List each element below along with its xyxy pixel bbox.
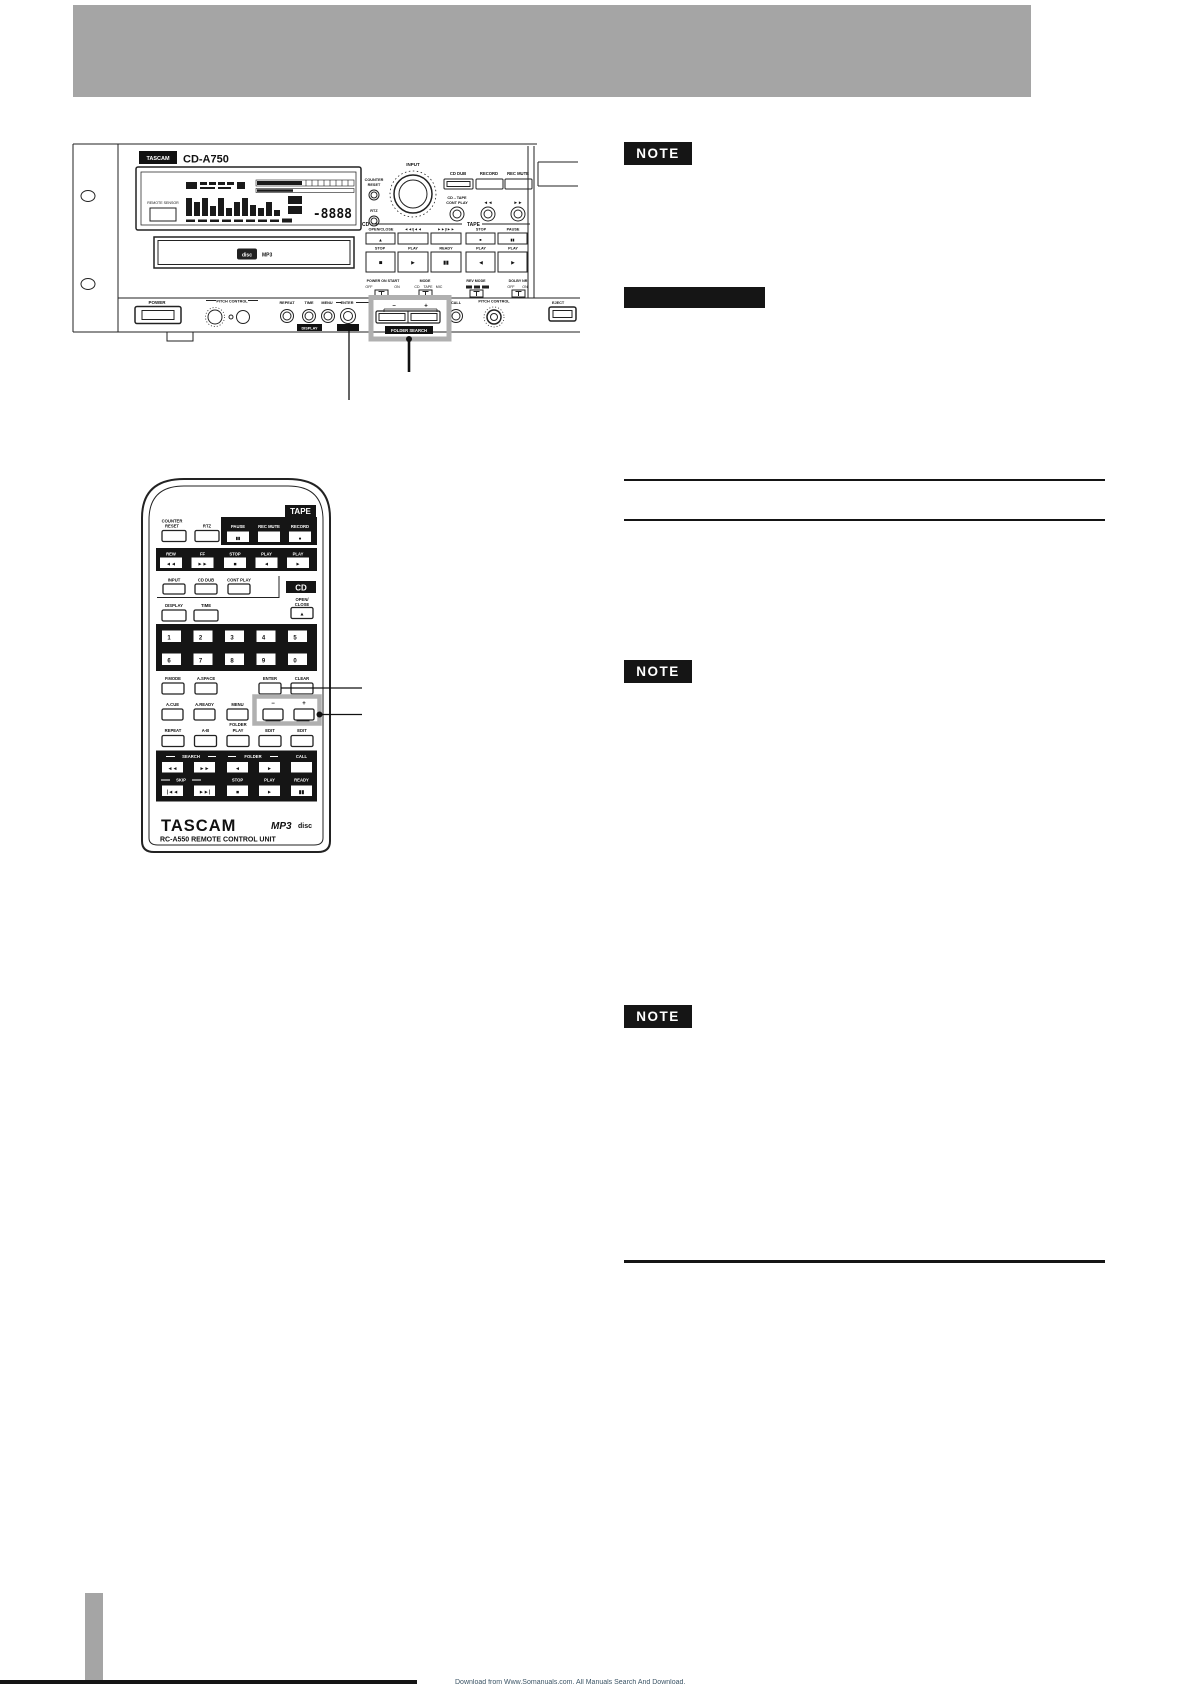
- svg-text:REPEAT: REPEAT: [279, 301, 295, 305]
- svg-text:CLEAR: CLEAR: [295, 676, 309, 681]
- tape-rew-button: [481, 207, 495, 221]
- rec-mute-key: [258, 532, 280, 543]
- panel-model: CD-A750: [183, 154, 229, 166]
- mp3-logo: MP3: [262, 253, 273, 259]
- a-space-key: [195, 683, 217, 694]
- input-label: INPUT: [406, 162, 420, 167]
- search-back-icon: ◄◄: [168, 766, 178, 772]
- svg-text:FOLDER: FOLDER: [244, 754, 261, 759]
- svg-text:MODE: MODE: [420, 279, 431, 283]
- stop-icon: ■: [233, 562, 236, 568]
- enter-sub-badge-plate: [337, 324, 359, 331]
- remote-sensor-window: [150, 208, 176, 221]
- svg-text:READY: READY: [294, 778, 309, 783]
- folder-search-badge: FOLDER SEARCH: [391, 328, 427, 333]
- remote-dark-blocks: [156, 505, 317, 802]
- rack-hole: [81, 191, 95, 202]
- svg-text:REPEAT: REPEAT: [165, 728, 182, 733]
- a-cue-key: [162, 709, 183, 720]
- rec-mute-label: REC MUTE: [507, 171, 529, 176]
- lcd-segments: [186, 181, 302, 223]
- manual-illustrations: TASCAM CD-A750 REMOTE SENSOR COUNTER RES…: [0, 0, 1191, 1684]
- record-label: RECORD: [480, 171, 498, 176]
- input-knob: [394, 175, 432, 213]
- front-panel-illustration: TASCAM CD-A750 REMOTE SENSOR COUNTER RES…: [73, 144, 580, 400]
- rtz-key: [195, 531, 219, 542]
- skip-fwd-icon: ►►|: [199, 790, 211, 796]
- enter-key: [259, 683, 281, 694]
- digit-key: [194, 631, 213, 643]
- svg-text:+: +: [302, 701, 306, 707]
- front-panel-badges: [139, 151, 489, 334]
- svg-text:►►: ►►: [514, 200, 523, 205]
- cd-dub-label: CD DUB: [450, 171, 466, 176]
- cd-skip-fwd-button: [431, 233, 461, 244]
- reverse-play-icon: ◄: [264, 562, 269, 568]
- svg-text:MENU: MENU: [321, 301, 332, 305]
- svg-text:+: +: [424, 304, 428, 310]
- search-fwd-icon: ►►: [200, 766, 210, 772]
- svg-text:CALL: CALL: [296, 754, 308, 759]
- digit-key: [225, 631, 244, 643]
- record-button: [476, 179, 503, 189]
- panel-callouts: [349, 324, 412, 401]
- cd-dub-key: [195, 584, 217, 594]
- svg-text:CONT PLAY: CONT PLAY: [227, 578, 251, 583]
- digit-key: [288, 654, 307, 666]
- svg-text:INPUT: INPUT: [168, 578, 181, 583]
- svg-text:TIME: TIME: [201, 603, 211, 608]
- play-icon: ►: [267, 790, 272, 796]
- svg-text:MENU: MENU: [231, 702, 243, 707]
- front-panel-outline: [73, 144, 580, 341]
- digit-key: [257, 654, 276, 666]
- svg-text:CALL: CALL: [451, 301, 462, 305]
- eject-label-partial: EJECT: [552, 301, 565, 305]
- a-ready-key: [194, 709, 215, 720]
- svg-text:CD: CD: [414, 285, 420, 289]
- tape-badge: TAPE: [290, 507, 311, 516]
- svg-text:A.CUE: A.CUE: [166, 702, 179, 707]
- svg-text:PLAY: PLAY: [408, 247, 418, 251]
- svg-text:POWER ON START: POWER ON START: [367, 279, 400, 283]
- digit-key: [257, 631, 276, 643]
- svg-text:FF: FF: [200, 552, 206, 557]
- pause-icon: ▮▮: [511, 238, 515, 242]
- ready-icon: ▮▮: [443, 260, 449, 266]
- record-icon: ●: [298, 536, 301, 542]
- svg-text:◄◄/|◄◄: ◄◄/|◄◄: [404, 228, 421, 232]
- rack-hole: [81, 279, 95, 290]
- svg-text:OFF: OFF: [365, 285, 373, 289]
- cd-dub-button: [444, 179, 473, 189]
- svg-text:RESET: RESET: [165, 524, 179, 529]
- svg-text:PLAY: PLAY: [508, 247, 518, 251]
- counter-reset-key: [162, 531, 186, 542]
- svg-text:A-B: A-B: [202, 728, 209, 733]
- svg-text:CONT PLAY: CONT PLAY: [446, 201, 468, 205]
- svg-text:RECORD: RECORD: [291, 524, 309, 529]
- svg-text:SEARCH: SEARCH: [182, 754, 200, 759]
- p-mode-key: [162, 683, 184, 694]
- cd-badge: CD: [295, 584, 307, 593]
- remote-brand: TASCAM: [161, 817, 236, 835]
- play-icon: ►: [510, 261, 516, 267]
- digit-key: [288, 631, 307, 643]
- svg-text:−: −: [271, 701, 275, 707]
- folder-fwd-icon: ►: [267, 766, 272, 772]
- svg-text:ENTER: ENTER: [341, 301, 354, 305]
- compact-disc-logo: disc: [242, 253, 252, 259]
- cd-skip-back-button: [398, 233, 428, 244]
- stop-icon: ■: [379, 261, 383, 267]
- menu-key: [227, 709, 248, 720]
- svg-text:FOLDER: FOLDER: [229, 722, 246, 727]
- svg-text:PAUSE: PAUSE: [231, 524, 245, 529]
- mp3-logo: MP3: [271, 821, 292, 832]
- minus-key: [263, 709, 283, 720]
- svg-text:REC MUTE: REC MUTE: [258, 524, 280, 529]
- svg-text:STOP: STOP: [229, 552, 241, 557]
- panel-brand: TASCAM: [146, 156, 170, 162]
- svg-text:P.MODE: P.MODE: [165, 676, 181, 681]
- ready-icon: ▮▮: [299, 790, 305, 796]
- svg-text:TIME: TIME: [304, 301, 314, 305]
- edit-key-2: [291, 736, 313, 747]
- digit-key: [194, 654, 213, 666]
- svg-text:CD→TAPE: CD→TAPE: [447, 196, 467, 200]
- repeat-key: [162, 736, 184, 747]
- svg-text:OFF: OFF: [507, 285, 515, 289]
- a-b-key: [195, 736, 217, 747]
- cont-play-key: [228, 584, 250, 594]
- cont-play-button: [450, 207, 464, 221]
- input-key: [163, 584, 185, 594]
- time-key: [194, 610, 218, 621]
- svg-text:►►|/►►: ►►|/►►: [437, 228, 454, 232]
- svg-text:A.SPACE: A.SPACE: [197, 676, 216, 681]
- display-key: [162, 610, 186, 621]
- folder-play-key: [227, 736, 249, 747]
- svg-text:REW: REW: [166, 552, 176, 557]
- compact-disc-logo: disc: [298, 823, 312, 830]
- display-badge: DISPLAY: [301, 327, 318, 331]
- svg-text:CD DUB: CD DUB: [198, 578, 214, 583]
- svg-text:EDIT: EDIT: [297, 728, 307, 733]
- remote-illustration: TAPE PAUSE REC MUTE RECORD REW FF STOP P…: [142, 479, 362, 852]
- plus-key: [294, 709, 314, 720]
- svg-text:DOLBY NR: DOLBY NR: [509, 279, 528, 283]
- svg-text:TAPE: TAPE: [423, 285, 433, 289]
- menu-button: [322, 310, 335, 323]
- svg-text:PLAY: PLAY: [476, 247, 486, 251]
- digit-key: [162, 654, 181, 666]
- svg-text:PLAY: PLAY: [233, 728, 244, 733]
- svg-text:A.READY: A.READY: [195, 702, 214, 707]
- svg-text:MIC: MIC: [436, 285, 443, 289]
- eject-icon: ▲: [378, 238, 382, 243]
- svg-text:STOP: STOP: [232, 778, 244, 783]
- svg-text:PITCH CONTROL: PITCH CONTROL: [216, 300, 248, 304]
- svg-text:STOP: STOP: [375, 247, 386, 251]
- svg-text:STOP: STOP: [476, 228, 487, 232]
- svg-text:PITCH CONTROL: PITCH CONTROL: [478, 300, 510, 304]
- play-icon: ►: [410, 261, 416, 267]
- time-button: [303, 310, 316, 323]
- svg-text:REV MODE: REV MODE: [466, 279, 486, 283]
- ff-icon: ►►: [198, 562, 208, 568]
- remote-unit-name: RC-A550 REMOTE CONTROL UNIT: [160, 837, 276, 844]
- rtz-label: RTZ: [370, 209, 378, 213]
- svg-text:PAUSE: PAUSE: [507, 228, 520, 232]
- svg-text:EDIT: EDIT: [265, 728, 275, 733]
- folder-back-icon: ◄: [235, 766, 240, 772]
- rew-icon: ◄◄: [166, 562, 176, 568]
- svg-text:SKIP: SKIP: [176, 778, 186, 783]
- play-icon: ►: [296, 562, 301, 568]
- repeat-button: [281, 310, 294, 323]
- enter-button: [341, 309, 356, 324]
- svg-text:◄◄: ◄◄: [484, 200, 493, 205]
- call-key: [291, 762, 312, 773]
- pause-icon: ▮▮: [236, 536, 241, 541]
- pitch-control-knob-right: [487, 310, 501, 324]
- svg-text:CLOSE: CLOSE: [295, 602, 310, 607]
- svg-text:COUNTER: COUNTER: [365, 178, 384, 182]
- digit-key: [162, 631, 181, 643]
- remote-sensor-label: REMOTE SENSOR: [147, 201, 179, 205]
- svg-text:ON: ON: [522, 285, 528, 289]
- svg-text:ON: ON: [394, 285, 400, 289]
- svg-text:PLAY: PLAY: [293, 552, 304, 557]
- svg-text:OPEN/CLOSE: OPEN/CLOSE: [369, 228, 394, 232]
- tape-ff-button: [511, 207, 525, 221]
- svg-text:DISPLAY: DISPLAY: [165, 603, 183, 608]
- edit-key-1: [259, 736, 281, 747]
- pitch-control-knob-left: [208, 310, 222, 324]
- svg-text:−: −: [392, 304, 396, 310]
- svg-text:RTZ: RTZ: [203, 524, 212, 529]
- lcd-counter-digits: -8888: [313, 207, 352, 222]
- svg-text:RESET: RESET: [368, 183, 381, 187]
- skip-back-icon: |◄◄: [167, 790, 178, 796]
- reverse-play-icon: ◄: [478, 261, 484, 267]
- panel-foot: [167, 332, 193, 341]
- svg-text:ENTER: ENTER: [263, 676, 277, 681]
- eject-icon: ▲: [300, 612, 305, 618]
- power-label: POWER: [148, 300, 166, 305]
- stop-icon: ■: [479, 238, 481, 242]
- digit-key: [225, 654, 244, 666]
- svg-text:PLAY: PLAY: [261, 552, 272, 557]
- svg-text:READY: READY: [439, 247, 453, 251]
- stop-icon: ■: [236, 790, 239, 796]
- svg-text:PLAY: PLAY: [264, 778, 275, 783]
